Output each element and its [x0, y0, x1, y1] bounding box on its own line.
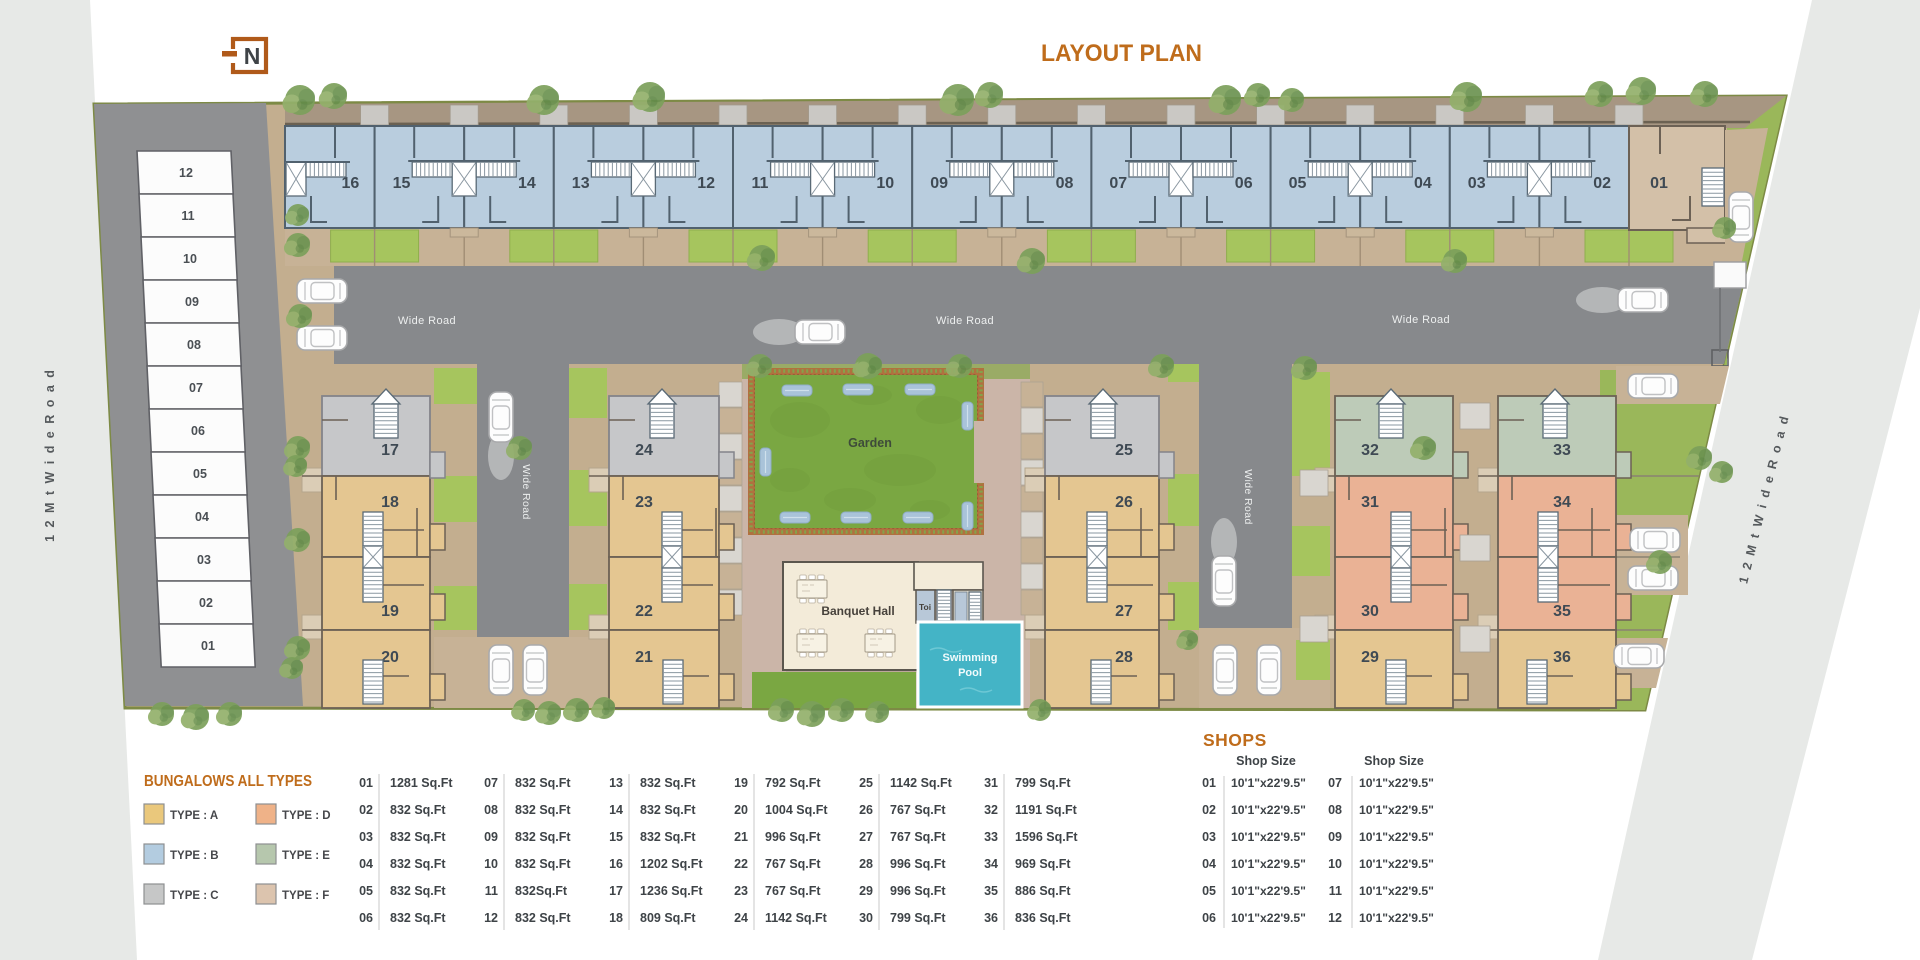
svg-text:27: 27 [859, 830, 873, 844]
svg-text:26: 26 [1115, 494, 1133, 511]
svg-text:06: 06 [1202, 911, 1216, 925]
svg-text:836 Sq.Ft: 836 Sq.Ft [1015, 911, 1071, 925]
svg-text:28: 28 [1115, 649, 1133, 666]
svg-text:Wide Road: Wide Road [1242, 469, 1254, 525]
svg-text:Wide Road: Wide Road [398, 315, 456, 327]
svg-text:Swimming: Swimming [942, 652, 997, 664]
svg-text:832 Sq.Ft: 832 Sq.Ft [640, 803, 696, 817]
svg-text:996 Sq.Ft: 996 Sq.Ft [765, 830, 821, 844]
svg-text:TYPE : A: TYPE : A [170, 810, 218, 822]
svg-text:10'1"x22'9.5": 10'1"x22'9.5" [1359, 911, 1434, 925]
svg-text:767 Sq.Ft: 767 Sq.Ft [890, 830, 946, 844]
svg-text:07: 07 [1109, 175, 1127, 192]
svg-text:12: 12 [697, 175, 715, 192]
svg-text:1596 Sq.Ft: 1596 Sq.Ft [1015, 830, 1078, 844]
svg-text:08: 08 [1056, 175, 1074, 192]
svg-text:15: 15 [393, 175, 411, 192]
svg-text:767 Sq.Ft: 767 Sq.Ft [890, 803, 946, 817]
svg-text:Wide Road: Wide Road [936, 315, 994, 327]
svg-text:06: 06 [1235, 175, 1253, 192]
svg-text:886 Sq.Ft: 886 Sq.Ft [1015, 884, 1071, 898]
svg-text:23: 23 [734, 884, 748, 898]
svg-text:10'1"x22'9.5": 10'1"x22'9.5" [1359, 776, 1434, 790]
svg-text:Garden: Garden [848, 436, 892, 450]
svg-text:07: 07 [484, 776, 498, 790]
svg-text:01: 01 [359, 776, 373, 790]
svg-text:04: 04 [359, 857, 373, 871]
svg-text:12: 12 [179, 166, 193, 180]
svg-text:36: 36 [1553, 649, 1571, 666]
svg-text:07: 07 [189, 381, 203, 395]
svg-text:Wide Road: Wide Road [520, 464, 532, 520]
svg-text:03: 03 [197, 553, 211, 567]
svg-text:18: 18 [609, 911, 623, 925]
svg-text:05: 05 [1202, 884, 1216, 898]
svg-text:19: 19 [381, 603, 399, 620]
svg-text:01: 01 [1202, 776, 1216, 790]
svg-text:832 Sq.Ft: 832 Sq.Ft [390, 911, 446, 925]
svg-text:832 Sq.Ft: 832 Sq.Ft [390, 803, 446, 817]
svg-text:Shop Size: Shop Size [1236, 754, 1296, 768]
svg-text:03: 03 [359, 830, 373, 844]
svg-text:TYPE : C: TYPE : C [170, 890, 219, 902]
svg-text:05: 05 [359, 884, 373, 898]
svg-text:28: 28 [859, 857, 873, 871]
svg-text:10'1"x22'9.5": 10'1"x22'9.5" [1231, 911, 1306, 925]
svg-text:10: 10 [876, 175, 894, 192]
svg-text:11: 11 [751, 175, 768, 192]
svg-text:31: 31 [984, 776, 998, 790]
svg-text:996 Sq.Ft: 996 Sq.Ft [890, 884, 946, 898]
svg-text:792 Sq.Ft: 792 Sq.Ft [765, 776, 821, 790]
svg-text:35: 35 [1553, 603, 1571, 620]
svg-text:30: 30 [859, 911, 873, 925]
svg-text:10: 10 [484, 857, 498, 871]
svg-text:36: 36 [984, 911, 998, 925]
svg-text:08: 08 [484, 803, 498, 817]
svg-text:02: 02 [1202, 803, 1216, 817]
svg-text:01: 01 [1650, 175, 1668, 192]
svg-text:22: 22 [635, 603, 653, 620]
svg-text:08: 08 [1328, 803, 1342, 817]
svg-text:832Sq.Ft: 832Sq.Ft [515, 884, 568, 898]
svg-text:12: 12 [484, 911, 498, 925]
svg-text:832 Sq.Ft: 832 Sq.Ft [515, 803, 571, 817]
svg-text:832 Sq.Ft: 832 Sq.Ft [515, 911, 571, 925]
svg-text:10'1"x22'9.5": 10'1"x22'9.5" [1231, 857, 1306, 871]
svg-text:13: 13 [572, 175, 590, 192]
svg-text:N: N [244, 43, 261, 69]
svg-text:25: 25 [1115, 442, 1133, 459]
svg-text:832 Sq.Ft: 832 Sq.Ft [515, 857, 571, 871]
svg-text:10'1"x22'9.5": 10'1"x22'9.5" [1231, 830, 1306, 844]
svg-text:06: 06 [191, 424, 205, 438]
svg-text:03: 03 [1468, 175, 1486, 192]
svg-text:04: 04 [195, 510, 209, 524]
svg-text:832 Sq.Ft: 832 Sq.Ft [390, 857, 446, 871]
svg-text:17: 17 [381, 442, 399, 459]
svg-text:05: 05 [1289, 175, 1307, 192]
svg-text:01: 01 [201, 639, 215, 653]
svg-text:767 Sq.Ft: 767 Sq.Ft [765, 884, 821, 898]
svg-text:17: 17 [609, 884, 623, 898]
svg-text:22: 22 [734, 857, 748, 871]
svg-text:1202 Sq.Ft: 1202 Sq.Ft [640, 857, 703, 871]
svg-text:02: 02 [199, 596, 213, 610]
svg-text:09: 09 [185, 295, 199, 309]
svg-text:02: 02 [1593, 175, 1611, 192]
svg-text:19: 19 [734, 776, 748, 790]
svg-text:969 Sq.Ft: 969 Sq.Ft [1015, 857, 1071, 871]
svg-text:23: 23 [635, 494, 653, 511]
svg-text:1142 Sq.Ft: 1142 Sq.Ft [765, 911, 828, 925]
svg-text:34: 34 [1553, 494, 1571, 511]
svg-text:29: 29 [859, 884, 873, 898]
svg-text:21: 21 [734, 830, 748, 844]
svg-text:27: 27 [1115, 603, 1133, 620]
svg-text:799 Sq.Ft: 799 Sq.Ft [1015, 776, 1071, 790]
svg-text:11: 11 [181, 209, 194, 223]
svg-text:832 Sq.Ft: 832 Sq.Ft [515, 830, 571, 844]
svg-text:TYPE : E: TYPE : E [282, 850, 330, 862]
svg-text:1236 Sq.Ft: 1236 Sq.Ft [640, 884, 703, 898]
svg-text:09: 09 [1328, 830, 1342, 844]
svg-text:10'1"x22'9.5": 10'1"x22'9.5" [1231, 884, 1306, 898]
svg-text:LAYOUT PLAN: LAYOUT PLAN [1041, 40, 1202, 67]
svg-text:12: 12 [1328, 911, 1342, 925]
svg-text:10'1"x22'9.5": 10'1"x22'9.5" [1359, 857, 1434, 871]
svg-text:14: 14 [518, 175, 536, 192]
svg-text:08: 08 [187, 338, 201, 352]
svg-text:TYPE : F: TYPE : F [282, 890, 329, 902]
svg-text:1 2 M t W i d e R o a d: 1 2 M t W i d e R o a d [43, 368, 57, 542]
svg-text:09: 09 [484, 830, 498, 844]
svg-text:10: 10 [1328, 857, 1342, 871]
svg-text:809 Sq.Ft: 809 Sq.Ft [640, 911, 696, 925]
svg-text:25: 25 [859, 776, 873, 790]
svg-text:Toi: Toi [919, 602, 931, 612]
svg-text:04: 04 [1202, 857, 1216, 871]
svg-text:TYPE : B: TYPE : B [170, 850, 219, 862]
svg-text:10'1"x22'9.5": 10'1"x22'9.5" [1359, 803, 1434, 817]
svg-text:33: 33 [1553, 442, 1571, 459]
svg-text:06: 06 [359, 911, 373, 925]
svg-text:832 Sq.Ft: 832 Sq.Ft [640, 830, 696, 844]
svg-text:20: 20 [734, 803, 748, 817]
svg-text:BUNGALOWS ALL TYPES: BUNGALOWS ALL TYPES [144, 773, 312, 790]
svg-text:07: 07 [1328, 776, 1342, 790]
svg-text:10'1"x22'9.5": 10'1"x22'9.5" [1359, 884, 1434, 898]
svg-text:10'1"x22'9.5": 10'1"x22'9.5" [1359, 830, 1434, 844]
svg-text:32: 32 [1361, 442, 1379, 459]
svg-text:24: 24 [635, 442, 653, 459]
svg-text:832 Sq.Ft: 832 Sq.Ft [390, 884, 446, 898]
svg-text:30: 30 [1361, 603, 1379, 620]
svg-text:02: 02 [359, 803, 373, 817]
svg-text:767 Sq.Ft: 767 Sq.Ft [765, 857, 821, 871]
svg-text:29: 29 [1361, 649, 1379, 666]
svg-text:26: 26 [859, 803, 873, 817]
svg-text:34: 34 [984, 857, 998, 871]
svg-text:14: 14 [609, 803, 623, 817]
svg-text:15: 15 [609, 830, 623, 844]
svg-text:832 Sq.Ft: 832 Sq.Ft [640, 776, 696, 790]
svg-text:10'1"x22'9.5": 10'1"x22'9.5" [1231, 776, 1306, 790]
svg-text:18: 18 [381, 494, 399, 511]
svg-text:Wide Road: Wide Road [1392, 314, 1450, 326]
svg-text:05: 05 [193, 467, 207, 481]
svg-text:1004 Sq.Ft: 1004 Sq.Ft [765, 803, 828, 817]
svg-text:1142 Sq.Ft: 1142 Sq.Ft [890, 776, 953, 790]
svg-text:16: 16 [609, 857, 623, 871]
svg-text:03: 03 [1202, 830, 1216, 844]
svg-text:11: 11 [485, 884, 498, 898]
svg-text:Shop Size: Shop Size [1364, 754, 1424, 768]
svg-text:31: 31 [1361, 494, 1379, 511]
svg-text:TYPE : D: TYPE : D [282, 810, 331, 822]
svg-text:24: 24 [734, 911, 748, 925]
svg-text:20: 20 [381, 649, 399, 666]
svg-text:832 Sq.Ft: 832 Sq.Ft [390, 830, 446, 844]
svg-text:13: 13 [609, 776, 623, 790]
svg-text:996 Sq.Ft: 996 Sq.Ft [890, 857, 946, 871]
svg-text:1281 Sq.Ft: 1281 Sq.Ft [390, 776, 453, 790]
svg-text:21: 21 [635, 649, 653, 666]
svg-text:10: 10 [183, 252, 197, 266]
svg-text:SHOPS: SHOPS [1203, 730, 1267, 750]
svg-text:1191 Sq.Ft: 1191 Sq.Ft [1015, 803, 1078, 817]
svg-text:09: 09 [930, 175, 948, 192]
svg-text:11: 11 [1329, 884, 1342, 898]
svg-text:35: 35 [984, 884, 998, 898]
svg-text:32: 32 [984, 803, 998, 817]
svg-text:799 Sq.Ft: 799 Sq.Ft [890, 911, 946, 925]
svg-text:Pool: Pool [958, 667, 982, 679]
svg-text:Banquet Hall: Banquet Hall [821, 604, 894, 618]
svg-text:04: 04 [1414, 175, 1432, 192]
svg-text:832 Sq.Ft: 832 Sq.Ft [515, 776, 571, 790]
svg-text:10'1"x22'9.5": 10'1"x22'9.5" [1231, 803, 1306, 817]
svg-text:33: 33 [984, 830, 998, 844]
